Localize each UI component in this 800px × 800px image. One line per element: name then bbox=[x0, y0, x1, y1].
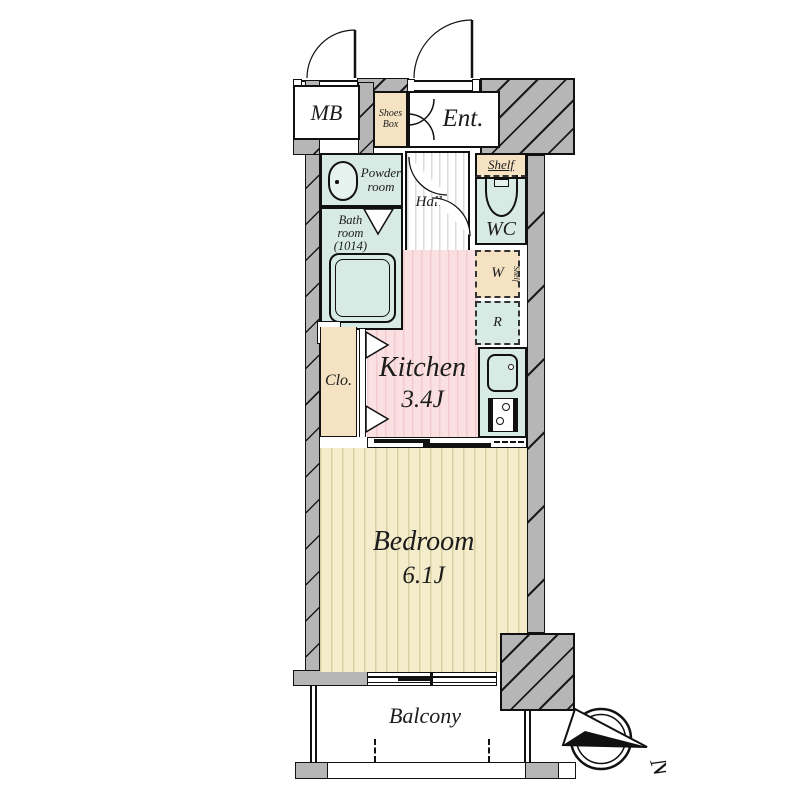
room-bath: Bath room (1014) bbox=[320, 207, 403, 330]
washer-label: W bbox=[491, 266, 504, 282]
balcony-rail-left bbox=[310, 686, 317, 762]
wall-left bbox=[305, 80, 320, 685]
shoes-box-door-arcs bbox=[408, 91, 448, 148]
wc-shelf: Shelf bbox=[475, 153, 527, 177]
refrigerator-label: R bbox=[493, 316, 502, 331]
kitchen-counter bbox=[478, 347, 527, 438]
bathtub-icon bbox=[329, 253, 396, 323]
bath-door-icon bbox=[363, 208, 395, 236]
entrance-door-arc bbox=[414, 20, 472, 78]
balcony-label: Balcony bbox=[389, 704, 461, 727]
powder-label-line2: room bbox=[368, 180, 395, 194]
room-bedroom: Bedroom 6.1J bbox=[320, 448, 527, 672]
stove-icon bbox=[488, 398, 518, 432]
washer-shelf-label: Shelf bbox=[512, 266, 520, 282]
balcony-partition-mark bbox=[374, 739, 376, 762]
closet-door-icons bbox=[366, 330, 390, 436]
closet-label: Clo. bbox=[325, 373, 352, 390]
room-wc: WC bbox=[475, 177, 527, 245]
room-balcony: Balcony bbox=[350, 700, 500, 732]
room-powder: Powder room bbox=[320, 153, 403, 207]
kitchen-faucet-icon bbox=[508, 364, 514, 370]
shoes-box-label-line1: Shoes bbox=[379, 109, 402, 120]
powder-door-arc bbox=[409, 157, 447, 195]
wall-left-wedge bbox=[293, 138, 320, 155]
bedroom-size: 6.1J bbox=[402, 563, 444, 589]
wc-door-arc bbox=[432, 198, 470, 236]
mb-label: MB bbox=[311, 101, 343, 124]
compass-icon: N bbox=[551, 697, 666, 792]
compass-north-label: N bbox=[644, 753, 666, 781]
powder-sink-icon bbox=[328, 161, 358, 201]
shoes-box-label-line2: Box bbox=[383, 120, 399, 131]
hall-door-arcs bbox=[405, 151, 472, 250]
closet-door-track bbox=[359, 329, 366, 437]
wc-shelf-label: Shelf bbox=[488, 158, 514, 172]
mb-door-arc bbox=[307, 30, 355, 78]
entrance-label: Ent. bbox=[443, 106, 484, 132]
kitchen-sink-icon bbox=[487, 354, 518, 392]
entry-door-arcs bbox=[290, 14, 485, 80]
refrigerator-space: R bbox=[475, 301, 520, 345]
room-closet: Clo. bbox=[320, 327, 357, 437]
room-shoes-box: Shoes Box bbox=[373, 91, 408, 148]
wc-label: WC bbox=[477, 219, 525, 240]
wall-right bbox=[527, 155, 545, 633]
kitchen-size: 3.4J bbox=[401, 387, 443, 413]
bedroom-name: Bedroom bbox=[373, 527, 475, 556]
powder-sink-dot bbox=[335, 180, 339, 184]
room-mb: MB bbox=[293, 85, 360, 140]
toilet-icon bbox=[485, 175, 518, 217]
kitchen-name: Kitchen bbox=[379, 353, 466, 382]
wall-bottom-left bbox=[293, 670, 369, 686]
powder-label-line1: Powder bbox=[361, 166, 401, 180]
floor-plan: MB Shoes Box Ent. Powder room Hall Shelf… bbox=[0, 0, 800, 800]
washer-space: W Shelf bbox=[475, 250, 520, 298]
kitchen-bedroom-sliding-door bbox=[367, 437, 527, 448]
balcony-rail-bottom bbox=[295, 762, 576, 779]
bedroom-window bbox=[367, 672, 497, 686]
wall-mb-shoes bbox=[358, 82, 374, 154]
balcony-partition-mark bbox=[488, 739, 490, 762]
bath-label-line3: (1014) bbox=[334, 240, 367, 253]
balcony-rail-right bbox=[524, 711, 531, 762]
